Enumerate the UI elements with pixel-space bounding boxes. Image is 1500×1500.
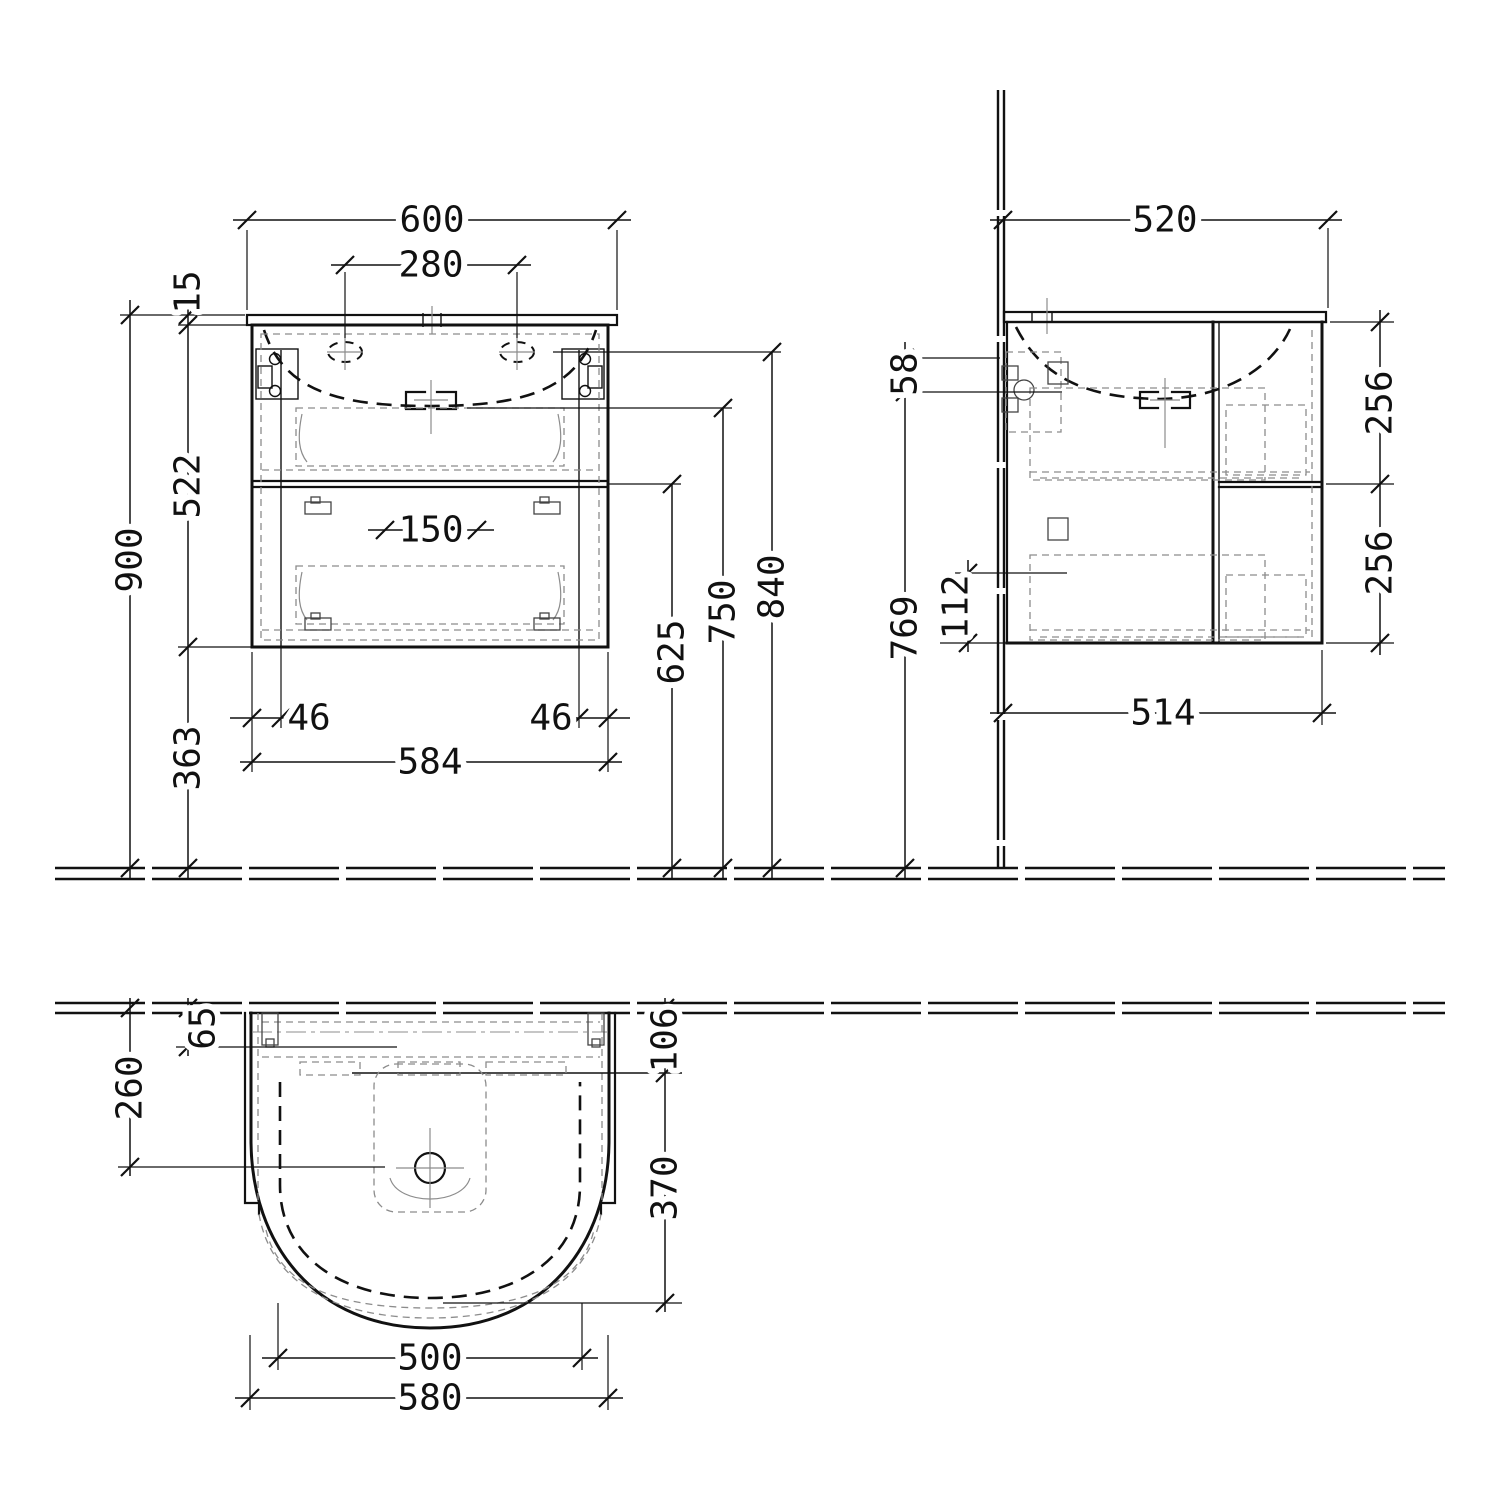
dim-side-siphon-height: 112 bbox=[936, 560, 1068, 652]
plan-view bbox=[55, 1003, 1445, 1328]
drawing-canvas: 600 280 15 522 363 900 bbox=[0, 0, 1500, 1500]
dim-label-900: 900 bbox=[110, 527, 151, 592]
dim-label-112: 112 bbox=[936, 574, 977, 639]
dim-label-500: 500 bbox=[397, 1338, 462, 1379]
plan-drain bbox=[374, 1064, 486, 1212]
dim-label-256-upper: 256 bbox=[1360, 370, 1401, 435]
bracket-right-hook bbox=[588, 366, 602, 388]
dim-label-625: 625 bbox=[652, 619, 693, 684]
dim-label-750: 750 bbox=[703, 579, 744, 644]
dim-side-cabinet-depth: 514 bbox=[990, 650, 1336, 734]
dim-front-divider-height: 625 bbox=[608, 475, 693, 880]
dim-label-520: 520 bbox=[1132, 200, 1197, 241]
dim-plan-drain-axis: 260 bbox=[110, 998, 151, 1176]
tap-deck-pad-left bbox=[300, 1062, 360, 1075]
dim-label-363: 363 bbox=[168, 725, 209, 790]
side-upper-drawer-box bbox=[1030, 388, 1265, 480]
upper-clip-left bbox=[305, 502, 331, 514]
dim-label-65: 65 bbox=[183, 1006, 224, 1049]
dim-label-46-right: 46 bbox=[529, 698, 572, 739]
dim-label-256-lower: 256 bbox=[1360, 530, 1401, 595]
side-drawer-internals bbox=[1030, 330, 1312, 640]
dim-label-522: 522 bbox=[168, 453, 209, 518]
dim-label-584: 584 bbox=[397, 742, 462, 783]
dim-side-overall-depth: 520 bbox=[990, 200, 1342, 309]
dim-label-46-left: 46 bbox=[287, 698, 330, 739]
side-upper-front-box bbox=[1226, 405, 1306, 475]
dim-front-siphon-cutout: 150 bbox=[368, 510, 494, 551]
dim-front-fixings: 46 46 584 bbox=[230, 647, 630, 783]
dim-label-15: 15 bbox=[168, 270, 209, 313]
side-bracket-upper bbox=[1048, 362, 1068, 384]
upper-drawer-profile-right bbox=[553, 414, 561, 462]
side-lower-drawer-box bbox=[1030, 555, 1265, 640]
dim-side-drawer-fronts: 256 256 bbox=[1326, 310, 1401, 655]
tap-hole-right bbox=[499, 334, 535, 370]
bracket-right-screw-bottom bbox=[580, 386, 591, 397]
upper-drawer-profile-left bbox=[299, 414, 307, 462]
dim-plan-tap-axis: 65 bbox=[179, 998, 224, 1056]
dim-label-514: 514 bbox=[1130, 693, 1195, 734]
valve-handle bbox=[1014, 380, 1034, 400]
upper-clip-right bbox=[534, 502, 560, 514]
basin-bowl-hidden-edge bbox=[264, 330, 596, 406]
plan-bracket-left-body bbox=[262, 1013, 278, 1045]
lower-drawer-profile-right bbox=[553, 572, 561, 620]
dim-label-106: 106 bbox=[645, 1007, 686, 1072]
tap-hole-left bbox=[327, 334, 363, 370]
front-view bbox=[247, 306, 617, 647]
dim-label-600: 600 bbox=[399, 200, 464, 241]
dim-front-total-height: 900 bbox=[110, 300, 151, 880]
dim-label-370: 370 bbox=[645, 1155, 686, 1220]
floor-line bbox=[55, 868, 1445, 879]
plan-skirt-curve-2 bbox=[266, 1230, 594, 1308]
lower-drawer-box bbox=[296, 566, 564, 624]
front-dimensions: 600 280 15 522 363 900 bbox=[110, 200, 793, 881]
dim-label-58: 58 bbox=[885, 352, 926, 395]
bracket-left-hook bbox=[258, 366, 272, 388]
dim-plan-depth-chain: 106 370 bbox=[443, 998, 686, 1312]
dim-label-840: 840 bbox=[752, 554, 793, 619]
dim-label-150: 150 bbox=[398, 510, 463, 551]
bracket-left-screw-bottom bbox=[270, 386, 281, 397]
dim-label-280: 280 bbox=[398, 245, 463, 286]
plan-bracket-left bbox=[262, 1013, 278, 1047]
side-bracket-lower bbox=[1048, 518, 1068, 540]
dim-label-769: 769 bbox=[885, 595, 926, 660]
dim-label-260: 260 bbox=[110, 1055, 151, 1120]
dim-plan-inner-width: 500 bbox=[262, 1303, 598, 1379]
plan-bracket-right-tab bbox=[592, 1039, 600, 1047]
technical-drawing: 600 280 15 522 363 900 bbox=[0, 0, 1500, 1500]
upper-drawer-box bbox=[296, 408, 564, 466]
lower-drawer-profile-left bbox=[299, 572, 307, 620]
dim-label-580: 580 bbox=[397, 1378, 462, 1419]
side-lower-front-box bbox=[1226, 575, 1306, 637]
plan-bracket-left-tab bbox=[266, 1039, 274, 1047]
